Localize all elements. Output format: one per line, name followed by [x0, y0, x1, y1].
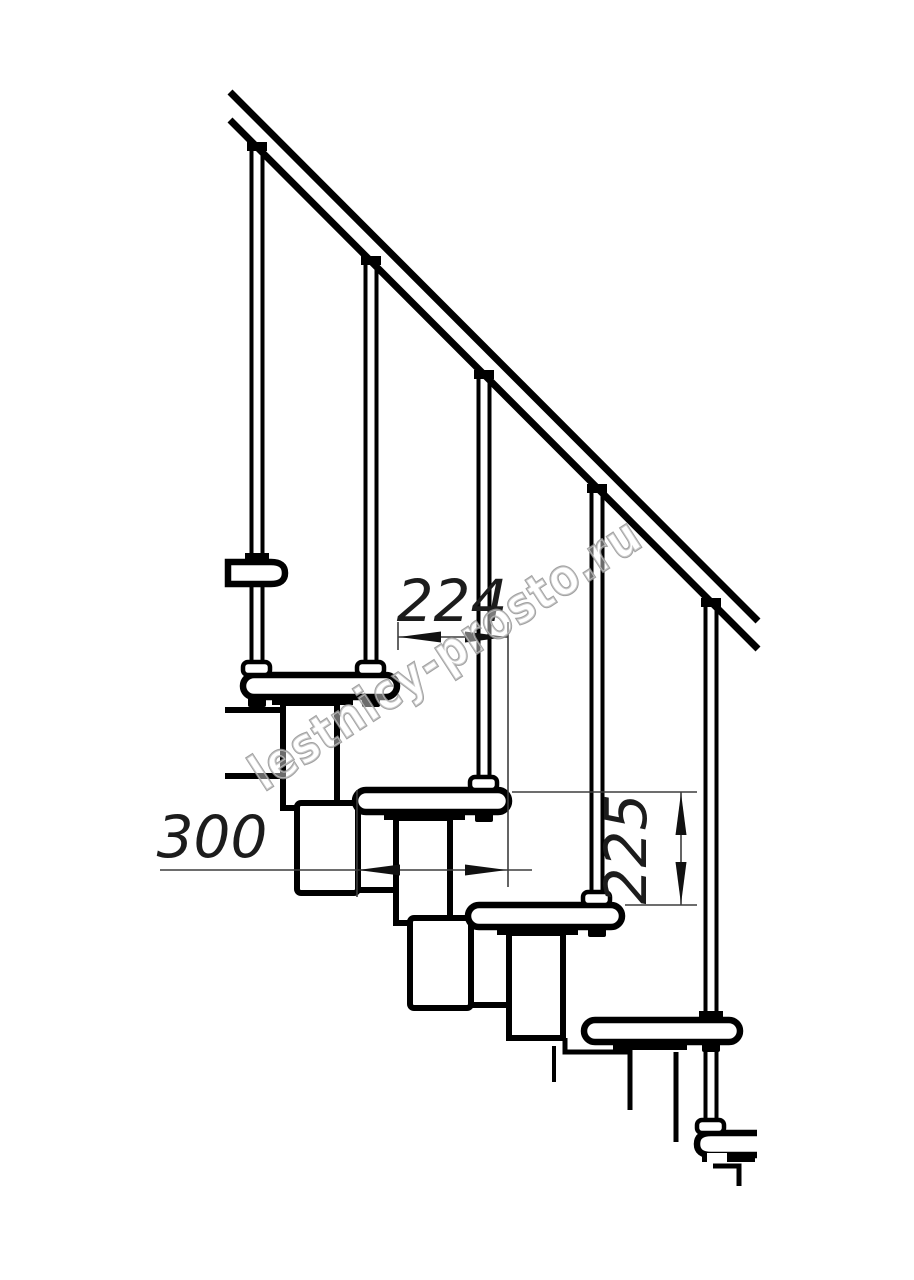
bolt-under-tread	[248, 697, 266, 707]
baluster-pass-collar	[699, 1011, 723, 1020]
baluster-top-connector	[247, 142, 267, 151]
staircase-side-view-drawing: 224 300 225 lestnicy-prosto.ru	[0, 0, 914, 1280]
baluster-base-flange	[470, 777, 497, 790]
bolt-under-tread	[475, 812, 493, 822]
tread-a	[228, 562, 285, 584]
arrowhead-down	[676, 862, 687, 904]
tread-e	[584, 1020, 740, 1042]
module-lower-cut	[713, 1166, 739, 1186]
baluster-2	[361, 256, 381, 675]
bolt-under-tread	[702, 1042, 720, 1052]
bolt-under-tread	[588, 927, 606, 937]
tread-d	[468, 905, 622, 927]
baluster-5	[701, 598, 721, 1133]
baluster-top-connector	[474, 370, 494, 379]
staircase-drawing-page: 224 300 225 lestnicy-prosto.ru	[0, 0, 914, 1280]
baluster-1	[247, 142, 267, 675]
dimension-depth-value: 300	[157, 803, 268, 871]
baluster-pass-collar	[245, 553, 269, 562]
baluster-top-connector	[587, 484, 607, 493]
baluster-base-flange	[243, 662, 270, 675]
arrowhead-right	[465, 865, 507, 876]
arrowhead-up	[676, 793, 687, 835]
baluster-top-connector	[361, 256, 381, 265]
handrail-upper-line	[230, 92, 758, 621]
dimension-rise: 225	[512, 792, 697, 905]
baluster-base-flange	[697, 1120, 724, 1133]
dimension-rise-value: 225	[592, 794, 660, 905]
baluster-top-connector	[701, 598, 721, 607]
tread-f	[697, 1133, 757, 1155]
tread-c	[355, 790, 509, 812]
